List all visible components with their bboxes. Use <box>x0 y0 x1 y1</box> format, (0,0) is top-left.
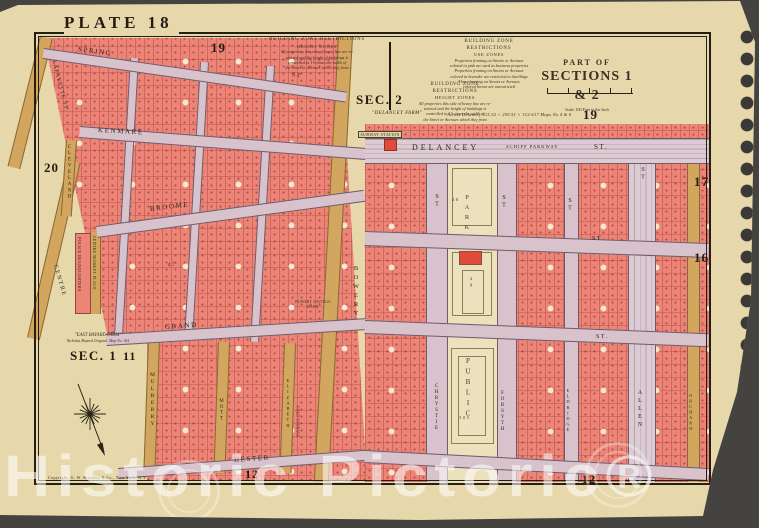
block-47-label: 47 <box>168 263 176 268</box>
sections-text: SECTIONS 1 & 2 <box>536 68 638 104</box>
street-label-eldridge: ELDRIDGE <box>565 388 569 433</box>
street-label-elizabeth: ELIZABETH <box>285 378 289 428</box>
section-2-label: SEC. 2 <box>356 92 403 108</box>
adjacent-plate-19-top: 19 <box>211 41 226 54</box>
adjacent-plate-20: 20 <box>44 161 59 174</box>
note-line: the Street or Avenues which they front <box>410 117 500 122</box>
park-building-48: 48 <box>468 276 473 289</box>
note-title: BUILDING ZONE RESTRICTIONS <box>443 39 535 52</box>
street-label-allen: ALLEN <box>637 390 643 430</box>
street-label-schiff-parkway: SCHIFF PARKWAY <box>506 145 559 150</box>
height-zones-note-1: BUILDING ZONE RESTRICTIONS HEIGHT ZONES … <box>268 37 366 70</box>
police-headquarters-label: POLICE HEADQUARTERS <box>77 237 81 292</box>
east-farm-note: "EAST BAYARD FARM" Nicholas Bayard Origi… <box>56 333 140 344</box>
note-line: the Street or Avenues which they front <box>268 65 366 70</box>
street-label-mott: MOTT <box>219 399 224 422</box>
street-label-centre-market: CENTRE MARKET PLACE <box>91 236 95 290</box>
cold-storage-label: COLD STORAGE <box>295 406 299 438</box>
bank-label-text: BOWERY SAVINGS BANK <box>293 300 333 309</box>
park-label: PARK <box>463 194 470 234</box>
street-label-spring-st: ST <box>292 72 303 79</box>
street-label-mulberry: MULBERRY <box>149 372 155 428</box>
park-block-305: 305 <box>459 416 471 421</box>
title-block: PART OF SECTIONS 1 & 2 Scale 100 Feet to… <box>536 58 638 112</box>
street-label-grand-east-st: ST. <box>596 334 609 340</box>
street-label-cleveland: CLEVELAND <box>67 145 72 201</box>
street-label-delancey: DELANCEY <box>412 144 479 152</box>
part-of-text: PART OF <box>536 58 638 68</box>
plate-title: PLATE 18 <box>64 13 179 35</box>
watermark-text: Historic Pictoric® <box>4 443 659 510</box>
note-line: All properties this side of heavy line a… <box>268 49 366 54</box>
compass-star <box>74 398 106 430</box>
bowery-savings-bank-label: BOWERY SAVINGS BANK <box>293 300 333 309</box>
public-label: PUBLIC <box>464 357 471 420</box>
street-label-bowery: BOWERY <box>352 265 359 319</box>
street-label-orchard: ORCHARD <box>688 393 692 432</box>
street-label-eldridge-st: ST <box>567 198 573 213</box>
photo-backdrop: PLATE 18 19 19 20 17 16 11 12 12 SEC. 2 … <box>0 0 759 528</box>
park-block-48: 48 <box>452 198 460 203</box>
section-1-label: SEC. 1 <box>70 348 117 364</box>
street-label-delancey-st: ST. <box>594 144 608 151</box>
street-label-forsyth: FORSYTH <box>500 391 505 433</box>
subway-station-label: SUBWAY STATION <box>358 131 402 138</box>
delancey-farm-note: "DELANCEY FARM" <box>372 112 422 117</box>
street-label-chrystie: CHRYSTIE <box>434 384 439 432</box>
note-title: BUILDING ZONE RESTRICTIONS <box>410 82 500 95</box>
adjacent-plate-11: 11 <box>123 350 136 362</box>
adjacent-plate-17: 17 <box>694 175 709 188</box>
note-line: Properties fronting on Streets or Avenue… <box>443 68 535 73</box>
street-label-allen-st: ST <box>640 167 646 182</box>
street-label-broome-east-st: ST <box>592 236 602 242</box>
across-delancey-note: Across Delancey 315.32 × 259.51 × 312-61… <box>447 113 571 117</box>
east-farm-line2: Nicholas Bayard Original. Map No. 361 <box>56 339 140 344</box>
street-label-forsyth-st: ST <box>501 195 507 210</box>
street-label-chrystie-st: ST <box>434 194 440 209</box>
adjacent-plate-16: 16 <box>694 251 709 264</box>
scale-bar <box>547 88 633 94</box>
binding-holes <box>739 28 755 384</box>
atlas-page: PLATE 18 19 19 20 17 16 11 12 12 SEC. 2 … <box>0 0 759 528</box>
note-title: BUILDING ZONE RESTRICTIONS <box>268 37 366 44</box>
